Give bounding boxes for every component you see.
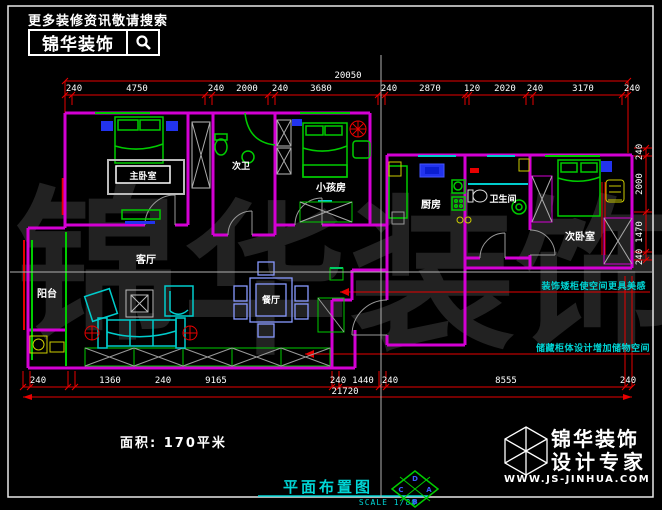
stamp-letter: D <box>412 475 418 483</box>
annotation-cabinet: 装饰矮柜使空间更具美感 <box>468 279 646 292</box>
stamp-letter: A <box>426 486 432 494</box>
dim-label: 2000 <box>236 84 258 94</box>
footer-brand-subtitle: 设计专家 <box>551 446 647 475</box>
dim-label: 240 <box>624 84 640 94</box>
room-label-balcony: 阳台 <box>37 287 57 300</box>
brand-search-box: 锦华装饰 <box>28 29 160 56</box>
cad-floorplan-canvas: 锦 华 装 饰 <box>0 0 662 510</box>
dim-label: 2020 <box>494 84 516 94</box>
dim-label: 8555 <box>495 376 517 386</box>
footer-website: WWW.JS-JINHUA.COM <box>504 474 650 485</box>
dim-label: 3680 <box>310 84 332 94</box>
dim-label: 4750 <box>126 84 148 94</box>
dim-label: 1470 <box>635 221 645 243</box>
dim-label: 240 <box>208 84 224 94</box>
dim-label: 2870 <box>419 84 441 94</box>
dim-label: 1440 <box>352 376 374 386</box>
side-tables <box>85 121 366 340</box>
dim-label: 240 <box>527 84 543 94</box>
dim-total-top: 20050 <box>334 71 361 81</box>
dim-total-bottom: 21720 <box>331 387 358 397</box>
room-label-master: 主卧室 <box>129 170 156 182</box>
drawing-title-block: 平面布置图 SCALE 1/80 D C A B <box>258 471 438 507</box>
stamp-letter: B <box>412 498 417 506</box>
dim-label: 240 <box>330 376 346 386</box>
dim-label: 240 <box>155 376 171 386</box>
room-label-bedroom2: 次卧室 <box>565 230 595 243</box>
room-label-bath2: 次卫 <box>232 160 250 172</box>
dim-label: 240 <box>635 144 645 160</box>
dim-label: 240 <box>620 376 636 386</box>
dim-label: 1360 <box>99 376 121 386</box>
dim-label: 240 <box>635 249 645 265</box>
dim-label: 240 <box>30 376 46 386</box>
room-label-living: 客厅 <box>135 253 156 266</box>
dim-label: 240 <box>382 376 398 386</box>
brand-name: 锦华装饰 <box>30 30 126 55</box>
room-label-bathroom: 卫生间 <box>489 193 516 205</box>
dim-label: 2000 <box>635 173 645 195</box>
room-label-kids: 小孩房 <box>315 181 346 194</box>
stamp-letter: C <box>398 486 403 494</box>
dim-label: 3170 <box>572 84 594 94</box>
annotation-storage: 储藏柜体设计增加储物空间 <box>462 341 650 354</box>
search-icon <box>128 34 158 51</box>
dim-label: 240 <box>272 84 288 94</box>
cube-logo-icon <box>505 427 547 475</box>
header-tagline: 更多装修资讯敬请搜索 <box>28 10 168 29</box>
coffee-table <box>126 290 153 317</box>
dim-label: 240 <box>381 84 397 94</box>
door-arcs <box>145 195 555 335</box>
dim-label: 240 <box>66 84 82 94</box>
drawing-title: 平面布置图 <box>283 478 373 496</box>
dim-label: 9165 <box>205 376 227 386</box>
dim-label: 120 <box>464 84 480 94</box>
room-label-kitchen: 厨房 <box>421 198 441 211</box>
room-label-dining: 餐厅 <box>261 294 280 306</box>
area-note: 面积: 170平米 <box>120 432 227 451</box>
